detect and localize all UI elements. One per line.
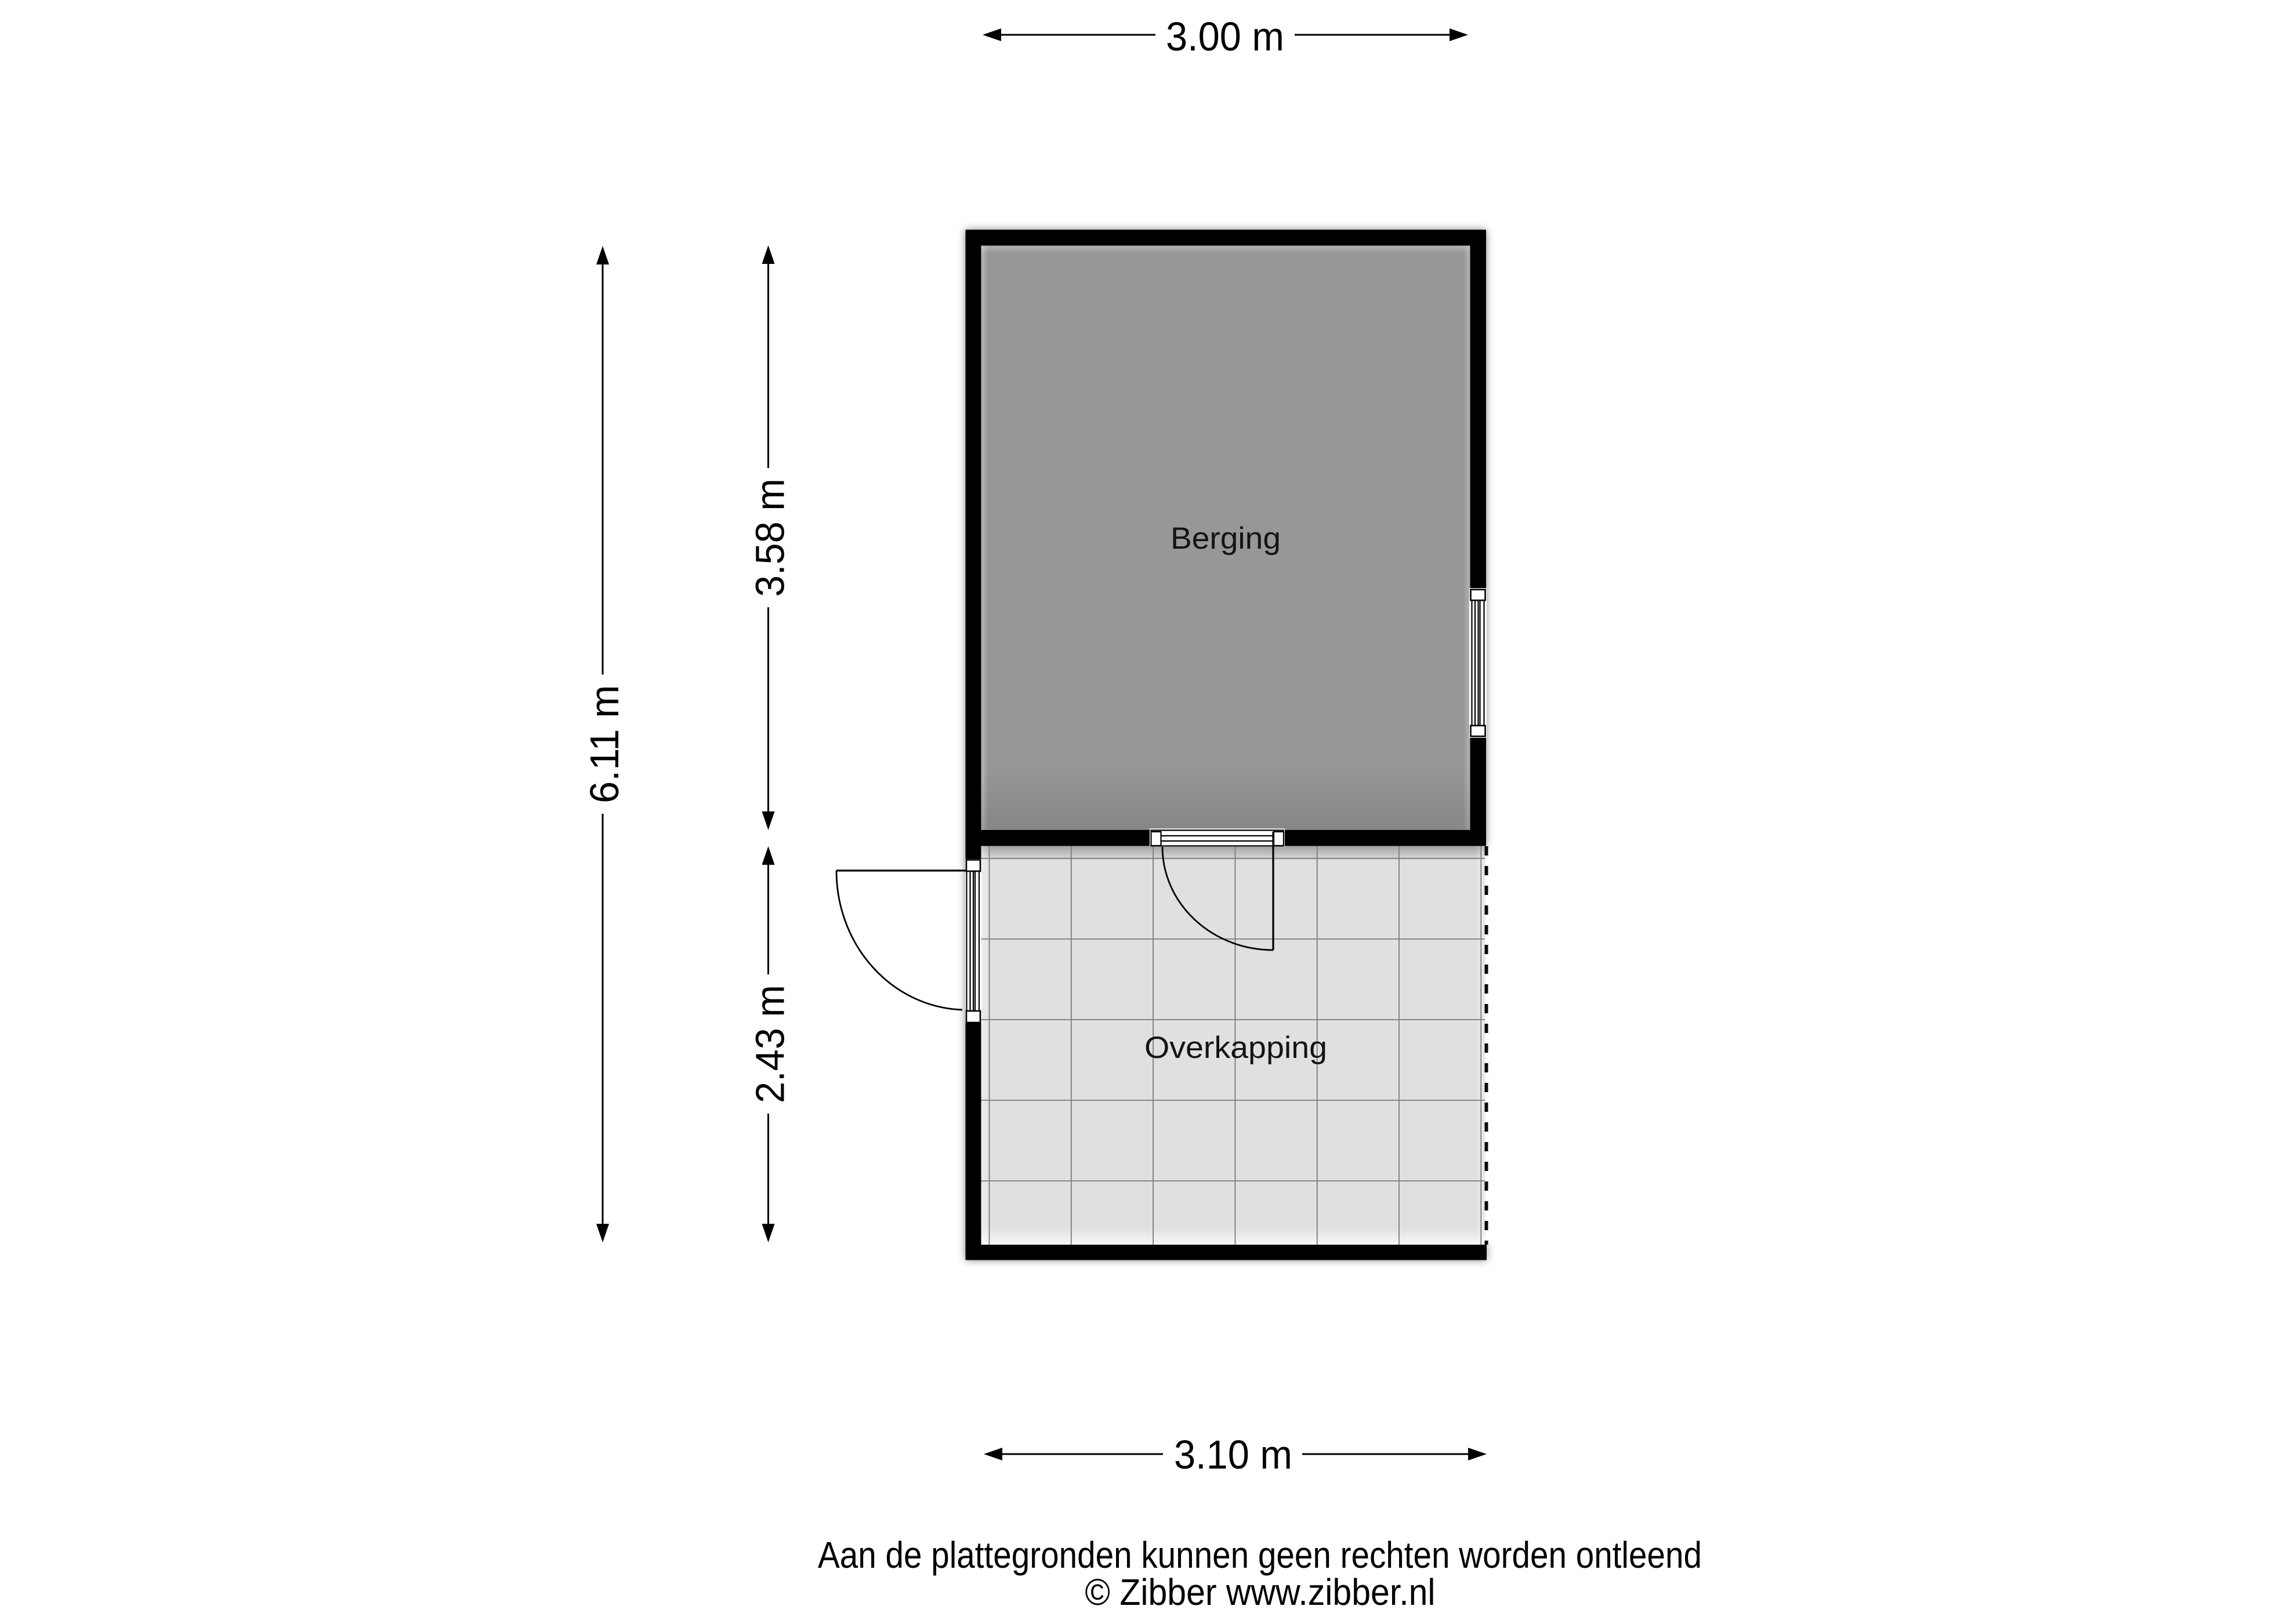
svg-text:Aan de plattegronden kunnen ge: Aan de plattegronden kunnen geen rechten… [818, 1534, 1702, 1576]
svg-text:© Zibber www.zibber.nl: © Zibber www.zibber.nl [1085, 1571, 1436, 1613]
svg-text:3.10 m: 3.10 m [1174, 1432, 1292, 1477]
svg-text:Berging: Berging [1171, 521, 1281, 556]
svg-text:3.58 m: 3.58 m [748, 478, 793, 597]
svg-text:3.00 m: 3.00 m [1166, 14, 1284, 59]
svg-text:2.43 m: 2.43 m [748, 985, 793, 1103]
svg-text:6.11 m: 6.11 m [582, 685, 627, 803]
svg-text:Overkapping: Overkapping [1144, 1031, 1327, 1065]
